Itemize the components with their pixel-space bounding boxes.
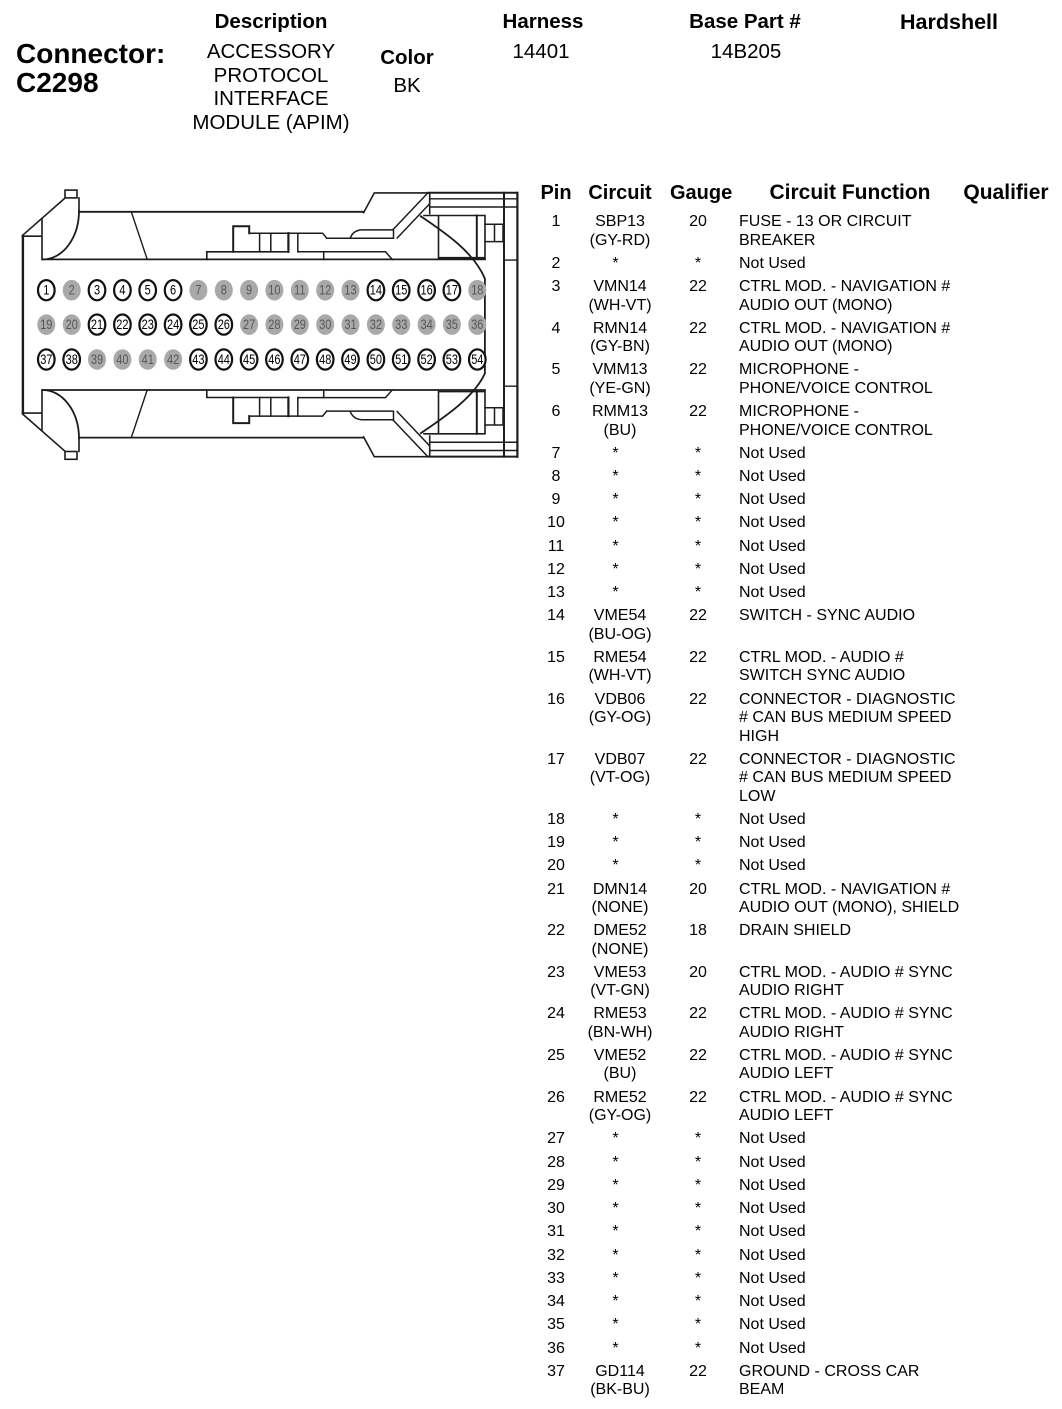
svg-text:51: 51 [395,352,407,367]
svg-text:18: 18 [471,283,483,298]
svg-text:23: 23 [142,317,154,332]
svg-text:14: 14 [370,283,382,298]
svg-text:37: 37 [40,352,52,367]
svg-text:36: 36 [471,317,483,332]
svg-text:22: 22 [116,317,128,332]
svg-text:49: 49 [344,352,356,367]
svg-text:17: 17 [446,283,458,298]
svg-text:16: 16 [420,283,432,298]
svg-text:3: 3 [94,283,100,298]
svg-text:53: 53 [446,352,458,367]
svg-text:48: 48 [319,352,331,367]
svg-text:7: 7 [195,283,201,298]
svg-text:6: 6 [170,283,176,298]
svg-text:12: 12 [319,283,331,298]
svg-text:34: 34 [420,317,432,332]
svg-text:42: 42 [167,352,179,367]
svg-text:4: 4 [119,283,125,298]
svg-text:15: 15 [395,283,407,298]
svg-text:39: 39 [91,352,103,367]
svg-text:19: 19 [40,317,52,332]
svg-text:24: 24 [167,317,179,332]
svg-text:2: 2 [69,283,75,298]
svg-text:11: 11 [294,283,306,298]
svg-text:13: 13 [344,283,356,298]
svg-text:25: 25 [192,317,204,332]
svg-text:20: 20 [66,317,78,332]
svg-text:9: 9 [246,283,252,298]
svg-text:33: 33 [395,317,407,332]
svg-text:35: 35 [446,317,458,332]
svg-text:29: 29 [294,317,306,332]
svg-text:31: 31 [344,317,356,332]
svg-text:38: 38 [66,352,78,367]
svg-text:54: 54 [471,352,483,367]
svg-text:30: 30 [319,317,331,332]
svg-text:32: 32 [370,317,382,332]
svg-text:40: 40 [116,352,128,367]
svg-text:52: 52 [420,352,432,367]
svg-text:10: 10 [268,283,280,298]
svg-text:5: 5 [145,283,151,298]
svg-text:26: 26 [218,317,230,332]
svg-text:43: 43 [192,352,204,367]
svg-text:47: 47 [294,352,306,367]
svg-text:1: 1 [43,283,49,298]
svg-text:44: 44 [218,352,230,367]
svg-text:27: 27 [243,317,255,332]
svg-text:46: 46 [268,352,280,367]
svg-text:28: 28 [268,317,280,332]
svg-text:45: 45 [243,352,255,367]
svg-text:50: 50 [370,352,382,367]
svg-text:41: 41 [142,352,154,367]
svg-text:8: 8 [221,283,227,298]
svg-text:21: 21 [91,317,103,332]
